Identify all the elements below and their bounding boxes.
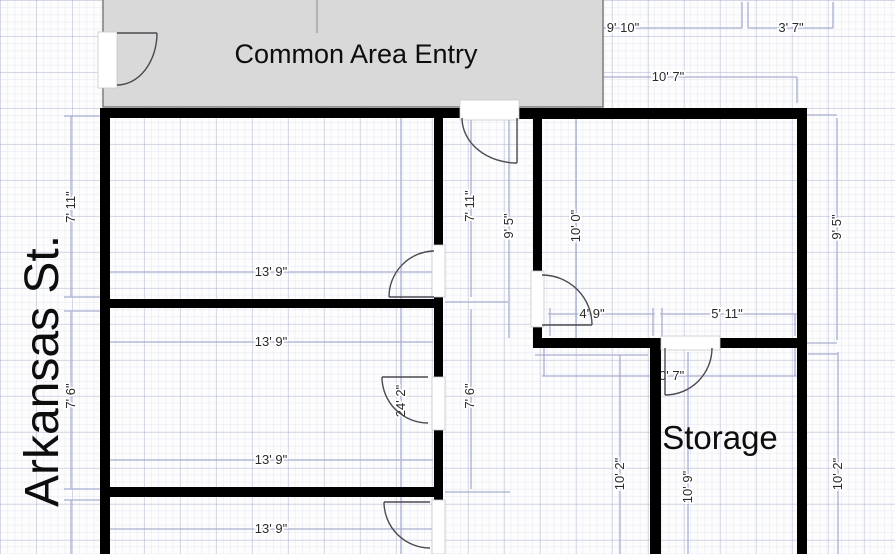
wall-right-room-bottom-left — [533, 338, 663, 348]
door-storage — [661, 336, 720, 395]
door-opening — [460, 100, 519, 120]
wall-room2-room3-divider — [100, 487, 443, 497]
wall-storage-left — [650, 338, 661, 554]
wall-top-left — [100, 108, 462, 118]
wall-hall-left-upper — [434, 108, 443, 245]
wall-hall-left-lower — [434, 430, 443, 502]
floor-plan-canvas: 9' 10" 3' 7" 10' 7" 7' 11" 7' 6" 13' 9" … — [0, 0, 895, 554]
walls — [100, 108, 807, 554]
dim-right-room-width: 10' 7" — [652, 69, 685, 84]
dim-room2-width-bottom: 13' 9" — [255, 452, 288, 467]
door-room2 — [382, 377, 445, 430]
dim-hall-height-upper: 9' 5" — [501, 213, 516, 239]
floor-plan: 9' 10" 3' 7" 10' 7" 7' 11" 7' 6" 13' 9" … — [0, 0, 895, 554]
door-opening — [661, 336, 720, 350]
wall-room1-room2-divider — [100, 299, 443, 308]
wall-hall-right-upper — [533, 108, 542, 273]
storage-room-label: Storage — [662, 419, 778, 456]
dim-room1-height-hall: 7' 11" — [462, 190, 477, 222]
door-room1 — [389, 245, 445, 297]
dim-right-area-height: 10' 2" — [830, 457, 845, 490]
dim-right-room-height-inner: 10' 0" — [568, 209, 583, 242]
dim-storage-width: 5' 11" — [711, 306, 743, 321]
common-area-entry-label: Common Area Entry — [234, 39, 478, 69]
dim-hall-height-total: 24' 2" — [393, 384, 408, 417]
door-arc — [384, 502, 430, 548]
common-area-entry: Common Area Entry — [103, 0, 603, 107]
dim-room1-width: 13' 9" — [255, 264, 288, 279]
wall-top-right — [517, 108, 807, 119]
door-room3 — [384, 500, 445, 554]
door-arc — [389, 251, 434, 297]
door-opening — [98, 32, 117, 88]
street-label: Arkansas St. — [16, 235, 69, 507]
dim-right-room-height-outer: 9' 5" — [829, 214, 844, 240]
dim-top-left-width: 9' 10" — [607, 20, 640, 35]
door-opening — [531, 271, 544, 327]
dim-room2-width-top: 13' 9" — [255, 334, 288, 349]
door-opening — [432, 500, 445, 554]
door-hall-entry — [460, 100, 519, 163]
wall-outer-right — [797, 108, 807, 554]
dim-room1-height-street: 7' 11" — [63, 191, 78, 223]
dim-open-area-height: 10' 2" — [612, 457, 627, 490]
wall-right-room-bottom-right — [718, 338, 807, 348]
dim-top-right-width: 3' 7" — [778, 20, 804, 35]
dim-storage-height: 10' 9" — [680, 470, 695, 503]
dim-room3-width: 13' 9" — [255, 521, 288, 536]
dim-room2-height-hall: 7' 6" — [462, 383, 477, 409]
wall-hall-left-middle — [434, 297, 443, 377]
door-opening — [432, 377, 445, 430]
door-opening — [432, 245, 445, 297]
